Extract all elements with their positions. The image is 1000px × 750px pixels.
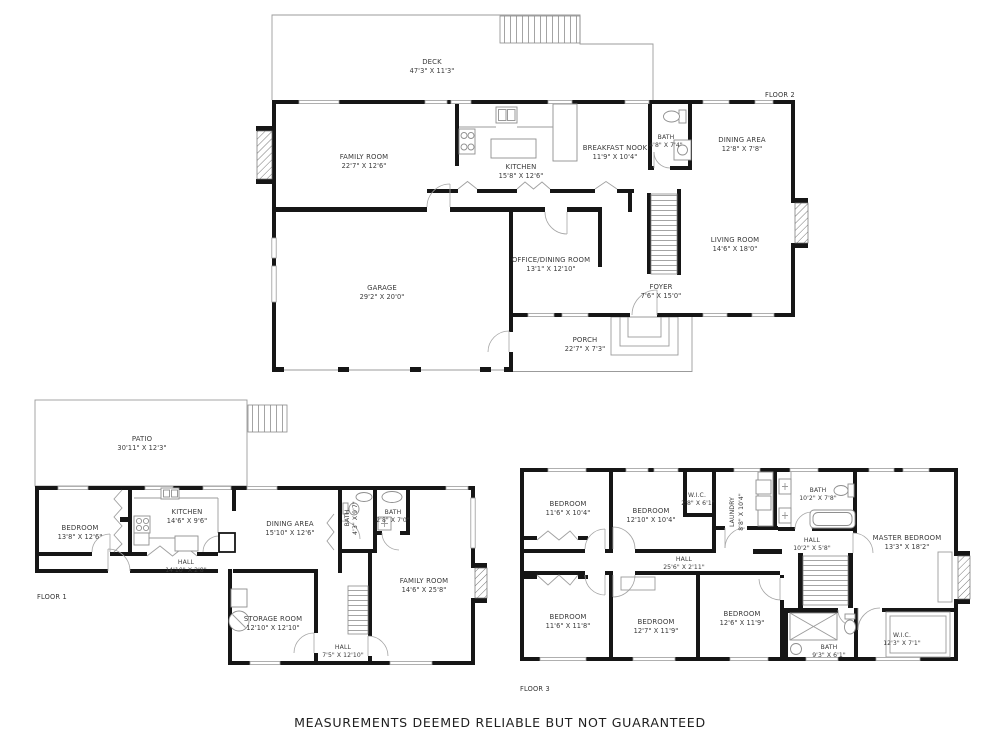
floor1-windows (58, 486, 475, 664)
floor1-walls (35, 486, 487, 665)
floor2-tag: FLOOR 2 (765, 91, 795, 99)
room-dims-deck: 47'3" X 11'3" (410, 67, 455, 75)
room-dims-dining-f1: 15'10" X 12'6" (265, 529, 314, 537)
room-dims-living-room: 14'6" X 18'0" (713, 245, 758, 253)
room-dims-wic2-f3: 12'3" X 7'1" (883, 640, 921, 647)
floor3-labels: FLOOR 3 BEDROOM 11'6" X 10'4" BEDROOM 12… (520, 487, 941, 693)
room-dims-kitchen-2: 15'8" X 12'6" (499, 172, 544, 180)
room-dims-family-room-2: 22'7" X 12'6" (342, 162, 387, 170)
floor1-patio-outline (35, 400, 287, 486)
room-dims-bath-low-f3: 9'3" X 6'1" (812, 652, 846, 659)
room-label-laundry: LAUNDRY (729, 497, 736, 527)
room-label-deck: DECK (422, 58, 442, 66)
room-label-wic2-f3: W.I.C. (893, 632, 911, 639)
room-label-bath2-f1: BATH (385, 509, 402, 516)
room-dims-foyer: 7'6" X 15'0" (641, 292, 682, 300)
floorplan-svg: FLOOR 2 DECK 47'3" X 11'3" FAMILY ROOM 2… (0, 0, 1000, 750)
room-label-bath-low-f3: BATH (821, 644, 838, 651)
room-dims-bed4-f3: 11'6" X 11'8" (546, 622, 591, 630)
fireplace-master (958, 556, 970, 599)
room-dims-bath-up-f3: 10'2" X 7'8" (799, 495, 837, 502)
fireplace-family-room (475, 568, 487, 598)
room-label-hall-upper-f3: HALL (804, 537, 821, 544)
room-dims-wic1-f3: 2'8" X 6'1" (681, 500, 715, 507)
room-dims-patio: 30'11" X 12'3" (117, 444, 166, 452)
floor1-tag: FLOOR 1 (37, 593, 67, 601)
room-label-bed1-f3: BEDROOM (549, 500, 586, 508)
room-dims-garage: 29'2" X 20'0" (360, 293, 405, 301)
room-label-foyer: FOYER (649, 283, 672, 291)
room-dims-bath-2: 4'8" X 7'4" (649, 142, 683, 149)
room-dims-bed2-f3: 12'10" X 10'4" (626, 516, 675, 524)
room-label-kitchen-2: KITCHEN (506, 163, 537, 171)
room-label-patio: PATIO (132, 435, 153, 443)
room-label-bed4-f3: BEDROOM (549, 613, 586, 621)
room-dims-hall1-f1: 14'10" X 2'8" (165, 567, 207, 574)
floor1-plan: FLOOR 1 PATIO 30'11" X 12'3" BEDROOM 13'… (35, 400, 487, 665)
room-dims-bed6-f3: 12'6" X 11'9" (720, 619, 765, 627)
room-label-wic1-f3: W.I.C. (688, 492, 706, 499)
room-dims-bath1-f1: 4'3" X 9'7" (352, 501, 359, 535)
fireplace-right (795, 203, 808, 243)
room-dims-breakfast-nook: 11'9" X 10'4" (593, 153, 638, 161)
room-label-family-room-2: FAMILY ROOM (340, 153, 389, 161)
room-label-bedroom-f1: BEDROOM (61, 524, 98, 532)
disclaimer-text: MEASUREMENTS DEEMED RELIABLE BUT NOT GUA… (294, 715, 706, 730)
room-label-living-room: LIVING ROOM (711, 236, 760, 244)
room-label-hall1-f1: HALL (178, 559, 195, 566)
floor2-plan: FLOOR 2 DECK 47'3" X 11'3" FAMILY ROOM 2… (256, 15, 808, 372)
room-dims-master: 13'3" X 18'2" (885, 543, 930, 551)
room-label-storage: STORAGE ROOM (244, 615, 302, 623)
room-label-office-dining: OFFICE/DINING ROOM (512, 256, 590, 264)
floor3-plan: FLOOR 3 BEDROOM 11'6" X 10'4" BEDROOM 12… (520, 468, 970, 693)
room-dims-bed1-f3: 11'6" X 10'4" (546, 509, 591, 517)
room-label-hall2-f1: HALL (335, 644, 352, 651)
room-label-hall-long-f3: HALL (676, 556, 693, 563)
room-dims-bath2-f1: 2'8" X 7'0" (376, 517, 410, 524)
room-label-master: MASTER BEDROOM (873, 534, 942, 542)
room-dims-kitchen-f1: 14'6" X 9'6" (167, 517, 208, 525)
room-label-porch: PORCH (573, 336, 598, 344)
room-dims-hall-upper-f3: 10'2" X 5'8" (793, 545, 831, 552)
room-label-bed5-f3: BEDROOM (637, 618, 674, 626)
room-dims-storage: 12'10" X 12'10" (246, 624, 299, 632)
floorplan-page: FLOOR 2 DECK 47'3" X 11'3" FAMILY ROOM 2… (0, 0, 1000, 750)
room-label-breakfast-nook: BREAKFAST NOOK (583, 144, 648, 152)
room-dims-dining-area-2: 12'8" X 7'8" (722, 145, 763, 153)
room-label-family-f1: FAMILY ROOM (400, 577, 449, 585)
room-label-kitchen-f1: KITCHEN (172, 508, 203, 516)
room-label-bath-up-f3: BATH (810, 487, 827, 494)
room-dims-laundry: 8'8" X 10'4" (738, 493, 745, 531)
room-dims-family-f1: 14'6" X 25'8" (402, 586, 447, 594)
room-dims-office-dining: 13'1" X 12'10" (526, 265, 575, 273)
room-label-dining-area-2: DINING AREA (718, 136, 766, 144)
room-label-bath-2: BATH (658, 134, 675, 141)
room-label-bed6-f3: BEDROOM (723, 610, 760, 618)
room-label-garage: GARAGE (367, 284, 397, 292)
room-label-bath1-f1: BATH (344, 510, 351, 527)
fireplace-left (257, 131, 272, 179)
room-dims-bedroom-f1: 13'8" X 12'6" (58, 533, 103, 541)
room-dims-porch: 22'7" X 7'3" (565, 345, 606, 353)
room-dims-hall-long-f3: 25'6" X 2'11" (663, 564, 705, 571)
room-dims-hall2-f1: 7'5" X 12'10" (322, 652, 364, 659)
room-label-bed2-f3: BEDROOM (632, 507, 669, 515)
room-dims-bed5-f3: 12'7" X 11'9" (634, 627, 679, 635)
floor3-tag: FLOOR 3 (520, 685, 550, 693)
room-label-dining-f1: DINING AREA (266, 520, 314, 528)
